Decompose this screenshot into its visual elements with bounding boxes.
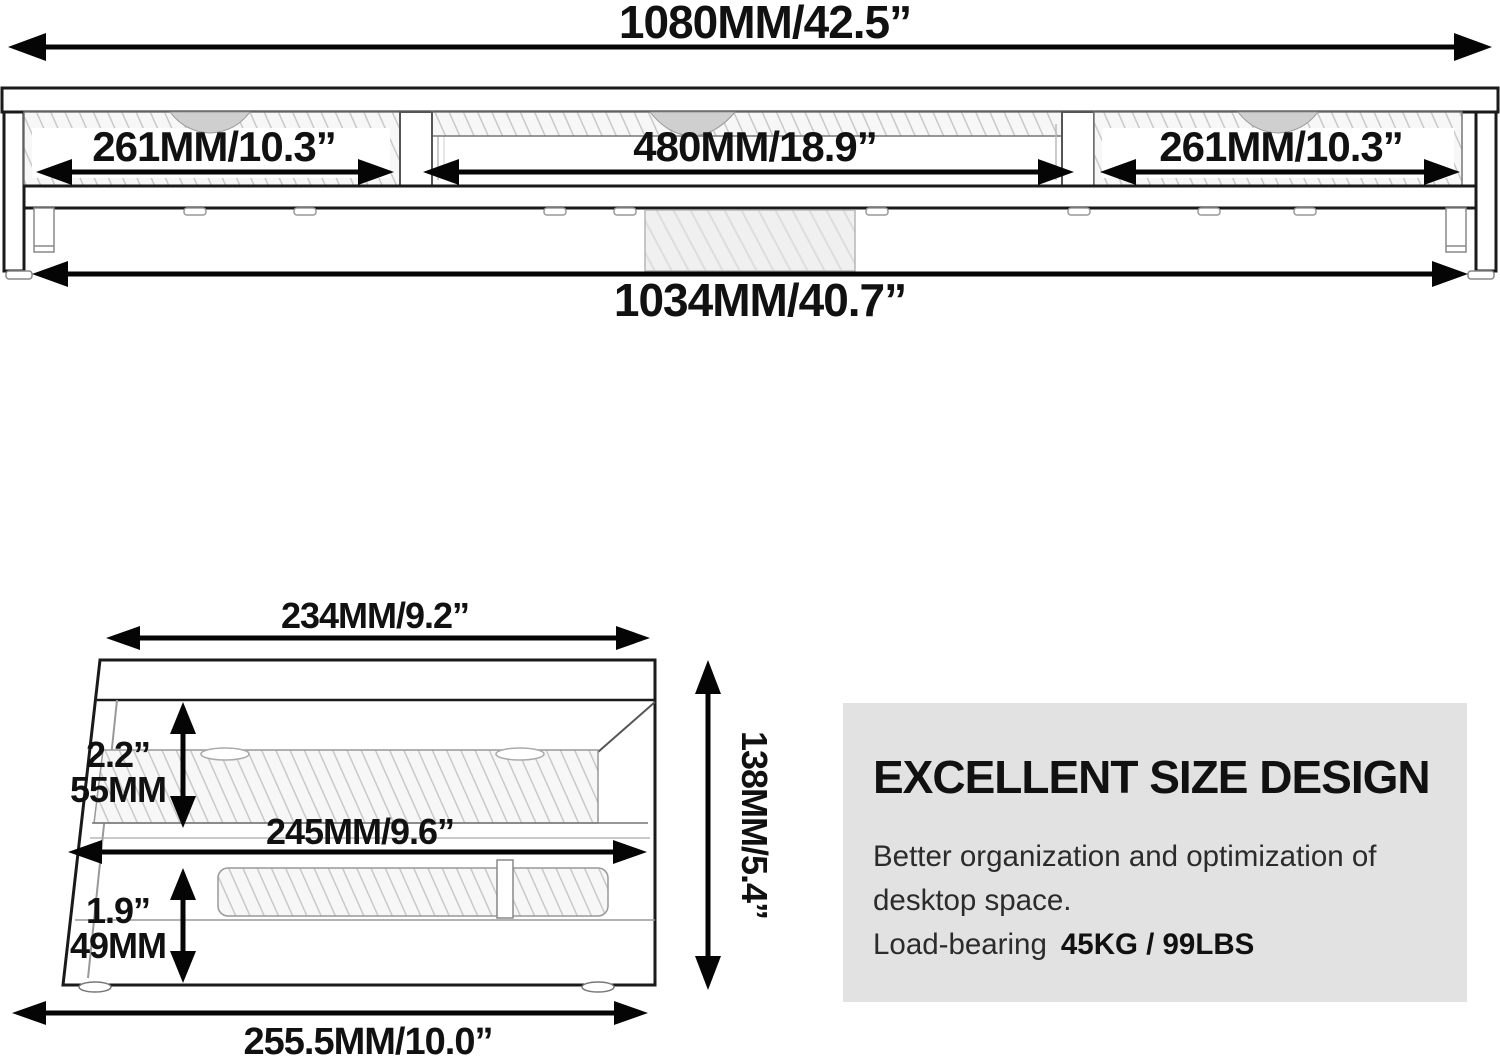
center-support xyxy=(645,210,855,271)
info-box-body: Better organization and optimization of … xyxy=(873,835,1439,967)
left-foot xyxy=(6,271,32,279)
product-dimension-diagram: 1080MM/42.5” xyxy=(0,0,1500,1058)
right-foot xyxy=(1468,271,1494,279)
height-label: 138MM/5.4” xyxy=(734,731,775,919)
left-section-label: 261MM/10.3” xyxy=(92,123,335,170)
side-support-post xyxy=(497,860,513,918)
info-line-2: desktop space. xyxy=(873,879,1439,923)
top-shelf xyxy=(2,88,1498,112)
front-view-drawing: 1080MM/42.5” xyxy=(0,0,1500,340)
middle-section-label: 480MM/18.9” xyxy=(633,123,876,170)
load-bearing-row: Load-bearing45KG / 99LBS xyxy=(873,923,1439,967)
right-post xyxy=(1062,112,1094,186)
side-rear-foot xyxy=(582,982,614,992)
height-arrow xyxy=(695,660,721,990)
left-leg xyxy=(4,112,24,271)
stand-front-drawing xyxy=(2,88,1498,279)
base-rail xyxy=(24,186,1476,208)
overall-width-label: 1080MM/42.5” xyxy=(619,0,911,48)
lower-clearance-mm-label: 49MM xyxy=(70,925,166,966)
right-leg xyxy=(1476,112,1496,271)
middle-depth-label: 245MM/9.6” xyxy=(266,811,454,852)
right-section-label: 261MM/10.3” xyxy=(1159,123,1402,170)
load-bearing-value: 45KG / 99LBS xyxy=(1061,928,1254,961)
top-depth-label: 234MM/9.2” xyxy=(281,595,469,636)
info-box: EXCELLENT SIZE DESIGN Better organizatio… xyxy=(843,703,1467,1002)
load-bearing-label: Load-bearing xyxy=(873,928,1047,961)
base-depth-label: 255.5MM/10.0” xyxy=(244,1021,493,1058)
upper-clearance-mm-label: 55MM xyxy=(70,769,166,810)
side-lower-shelf xyxy=(218,868,608,916)
base-width-label: 1034MM/40.7” xyxy=(614,274,906,326)
info-line-1: Better organization and optimization of xyxy=(873,835,1439,879)
side-front-foot xyxy=(79,982,111,992)
info-box-title: EXCELLENT SIZE DESIGN xyxy=(873,753,1439,801)
side-view-drawing: 234MM/9.2” xyxy=(0,580,780,1058)
left-post xyxy=(400,112,432,186)
